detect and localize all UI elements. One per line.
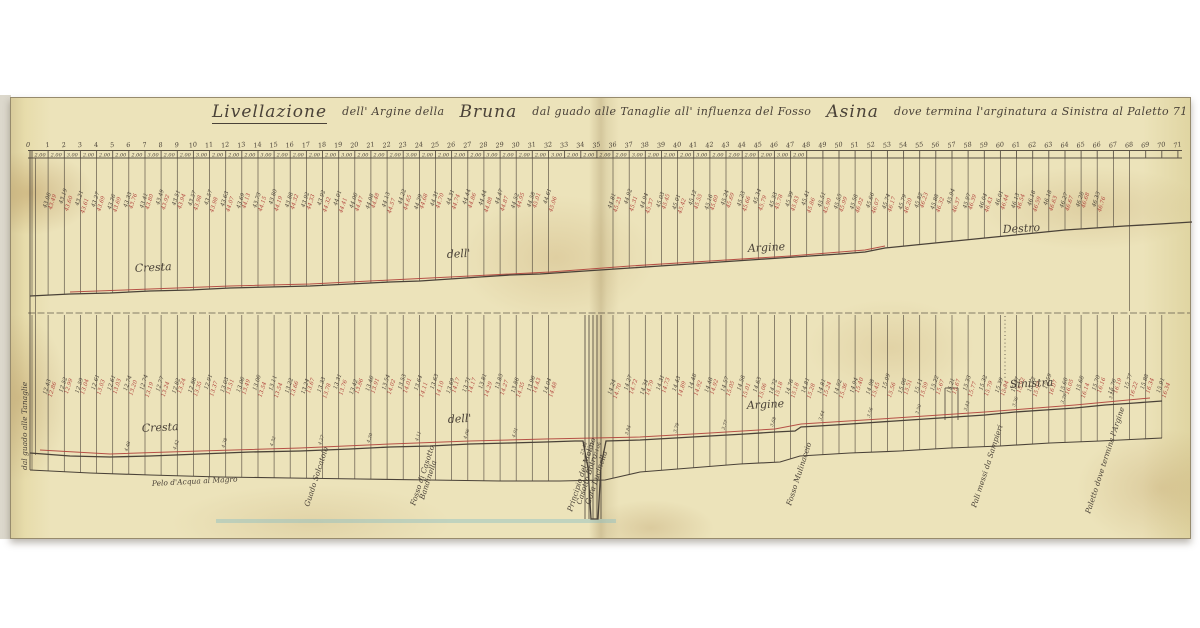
svg-text:59: 59 (979, 140, 989, 150)
svg-text:35: 35 (592, 140, 602, 150)
svg-text:2.00: 2.00 (518, 152, 531, 158)
svg-text:15: 15 (269, 140, 279, 150)
svg-text:8: 8 (158, 141, 164, 150)
svg-text:4.42: 4.42 (172, 439, 181, 451)
svg-text:3.00: 3.00 (551, 152, 563, 158)
svg-text:62: 62 (1027, 140, 1037, 150)
svg-text:3.00: 3.00 (67, 152, 79, 158)
svg-text:55: 55 (914, 140, 924, 150)
svg-text:34: 34 (576, 140, 586, 150)
svg-text:2.00: 2.00 (243, 152, 256, 158)
svg-text:3.50: 3.50 (914, 404, 923, 416)
svg-text:2.00: 2.00 (437, 152, 450, 158)
svg-text:18: 18 (317, 140, 327, 150)
svg-text:14: 14 (253, 140, 263, 150)
svg-text:58: 58 (963, 140, 973, 150)
svg-text:2.00: 2.00 (421, 152, 434, 158)
svg-text:3.00: 3.00 (148, 152, 160, 158)
svg-text:50: 50 (834, 140, 844, 150)
svg-text:2.00: 2.00 (34, 152, 47, 158)
svg-text:2.00: 2.00 (566, 152, 579, 158)
svg-text:2.00: 2.00 (598, 152, 611, 158)
svg-text:51: 51 (850, 140, 860, 150)
svg-text:Fosso Mulinaccio: Fosso Mulinaccio (784, 441, 813, 508)
svg-text:3.00: 3.00 (696, 152, 708, 158)
svg-text:29: 29 (494, 140, 505, 150)
svg-text:Cresta: Cresta (134, 260, 171, 275)
svg-text:31: 31 (527, 140, 537, 150)
svg-text:4.48: 4.48 (123, 441, 132, 453)
svg-text:4.27: 4.27 (317, 434, 326, 446)
svg-text:21: 21 (365, 140, 376, 150)
svg-text:4.11: 4.11 (414, 431, 423, 443)
svg-text:2.00: 2.00 (792, 152, 805, 158)
svg-text:47: 47 (784, 140, 796, 150)
svg-text:2.00: 2.00 (227, 152, 240, 158)
svg-text:54: 54 (898, 140, 908, 150)
svg-text:2.00: 2.00 (82, 152, 95, 158)
svg-text:3.00: 3.00 (196, 152, 208, 158)
svg-text:2.00: 2.00 (98, 152, 111, 158)
svg-text:71: 71 (1173, 140, 1183, 150)
scanned-survey-page: Livellazione dell' Argine della Bruna da… (0, 0, 1200, 628)
svg-text:64: 64 (1060, 140, 1070, 150)
svg-text:26: 26 (445, 140, 456, 150)
svg-text:Cresta: Cresta (141, 420, 178, 435)
svg-text:39: 39 (656, 140, 666, 150)
svg-text:30: 30 (511, 140, 521, 150)
svg-text:65: 65 (1076, 140, 1086, 150)
svg-text:69: 69 (1140, 140, 1150, 150)
svg-text:Paletto dove termina l'Argine: Paletto dove termina l'Argine (1083, 405, 1126, 515)
svg-text:45: 45 (752, 140, 763, 150)
svg-text:2.00: 2.00 (211, 152, 224, 158)
svg-text:3.00: 3.00 (486, 152, 498, 158)
svg-text:3.84: 3.84 (624, 424, 633, 436)
svg-text:2.00: 2.00 (663, 152, 676, 158)
svg-text:2.00: 2.00 (50, 152, 63, 158)
svg-text:24: 24 (413, 140, 424, 150)
svg-text:3.64: 3.64 (818, 410, 827, 422)
svg-text:2.00: 2.00 (372, 152, 385, 158)
svg-text:0: 0 (26, 141, 30, 149)
svg-text:2.00: 2.00 (276, 152, 289, 158)
svg-text:48: 48 (800, 140, 811, 150)
svg-text:33: 33 (559, 140, 569, 150)
svg-text:4: 4 (92, 141, 99, 150)
svg-text:37: 37 (624, 140, 635, 150)
svg-text:12: 12 (220, 140, 230, 150)
svg-text:63: 63 (1044, 140, 1054, 150)
svg-text:Argine: Argine (746, 240, 785, 255)
svg-text:2.00: 2.00 (760, 152, 773, 158)
svg-text:3.00: 3.00 (632, 152, 644, 158)
profile-labels: Crestadell'ArgineDestroCrestadell'Argine… (134, 221, 1053, 435)
svg-text:2.00: 2.00 (130, 152, 143, 158)
svg-text:4.32: 4.32 (268, 436, 277, 448)
svg-text:2.00: 2.00 (582, 152, 595, 158)
svg-text:dal guado alle Tanaglie: dal guado alle Tanaglie (20, 381, 29, 470)
svg-text:2.00: 2.00 (179, 152, 192, 158)
svg-text:Destro: Destro (1001, 221, 1040, 236)
svg-text:4.20: 4.20 (365, 432, 374, 444)
svg-text:44: 44 (736, 140, 747, 150)
svg-text:Pelo d'Acqua al Magro: Pelo d'Acqua al Magro (151, 474, 239, 488)
svg-text:10: 10 (188, 140, 198, 150)
svg-text:2.00: 2.00 (163, 152, 176, 158)
leveling-profile-chart: 0123456789101112131415161718192021222324… (0, 0, 1200, 628)
svg-text:3.43: 3.43 (963, 400, 972, 412)
svg-text:20: 20 (349, 140, 360, 150)
svg-text:70: 70 (1157, 140, 1167, 150)
svg-text:61: 61 (1011, 140, 1021, 150)
svg-text:2.00: 2.00 (502, 152, 515, 158)
svg-text:2.00: 2.00 (453, 152, 466, 158)
svg-text:13: 13 (237, 140, 247, 150)
svg-text:52: 52 (866, 140, 876, 150)
svg-text:23: 23 (397, 140, 408, 150)
svg-text:2.00: 2.00 (711, 152, 724, 158)
svg-text:dell': dell' (446, 247, 470, 261)
svg-text:6: 6 (126, 141, 132, 150)
svg-text:38: 38 (640, 140, 650, 150)
svg-text:3.77: 3.77 (721, 419, 730, 431)
svg-text:2.00: 2.00 (647, 152, 660, 158)
svg-text:17: 17 (301, 140, 312, 150)
svg-text:2.00: 2.00 (534, 152, 547, 158)
svg-text:60: 60 (995, 140, 1005, 150)
svg-text:41: 41 (687, 140, 698, 150)
svg-text:56: 56 (931, 140, 941, 150)
svg-text:Sinistra: Sinistra (1009, 376, 1053, 391)
svg-text:4.06: 4.06 (462, 428, 471, 440)
svg-text:46: 46 (768, 140, 779, 150)
svg-text:4.01: 4.01 (511, 427, 520, 439)
svg-text:2.00: 2.00 (114, 152, 127, 158)
svg-text:3.68: 3.68 (769, 416, 778, 428)
upper-readings: 43.0843.4943.1943.6043.2143.6143.2743.69… (42, 187, 1108, 215)
station-numbers: 0123456789101112131415161718192021222324… (26, 140, 1182, 150)
svg-text:1: 1 (45, 141, 51, 150)
svg-text:2.00: 2.00 (469, 152, 482, 158)
svg-text:3.00: 3.00 (777, 152, 789, 158)
svg-text:3.00: 3.00 (406, 152, 418, 158)
svg-text:2: 2 (60, 141, 67, 150)
svg-text:3.29: 3.29 (1060, 393, 1069, 405)
svg-text:32: 32 (543, 140, 553, 150)
svg-text:3: 3 (77, 141, 83, 150)
svg-text:11: 11 (204, 140, 214, 150)
lower-readings: 12.4312.8612.5212.9912.5913.0412.6113.03… (42, 373, 1172, 400)
marginal-notes: dal guado alle TanagliePelo d'Acqua al M… (20, 381, 1127, 515)
svg-text:2.00: 2.00 (356, 152, 369, 158)
svg-text:22: 22 (381, 140, 392, 150)
svg-text:Argine: Argine (745, 397, 784, 412)
svg-text:2.00: 2.00 (615, 152, 628, 158)
svg-text:57: 57 (947, 140, 958, 150)
svg-text:3.79: 3.79 (672, 422, 681, 434)
svg-text:dell': dell' (447, 412, 471, 426)
svg-text:9: 9 (174, 141, 180, 150)
svg-text:2.00: 2.00 (679, 152, 692, 158)
svg-text:67: 67 (1108, 140, 1119, 150)
svg-text:4.38: 4.38 (220, 437, 229, 449)
svg-text:3.00: 3.00 (260, 152, 272, 158)
svg-text:66: 66 (1092, 140, 1102, 150)
svg-text:2.00: 2.00 (744, 152, 757, 158)
svg-text:27: 27 (462, 140, 474, 150)
svg-text:28: 28 (478, 140, 489, 150)
svg-text:3.00: 3.00 (341, 152, 353, 158)
svg-text:25: 25 (429, 140, 440, 150)
svg-text:43: 43 (720, 140, 731, 150)
svg-text:Pali messi da Sampieri: Pali messi da Sampieri (969, 423, 1005, 509)
svg-text:3.56: 3.56 (866, 407, 875, 419)
svg-text:7: 7 (142, 141, 149, 150)
svg-text:2.00: 2.00 (308, 152, 321, 158)
svg-text:42: 42 (704, 140, 715, 150)
svg-text:2.00: 2.00 (728, 152, 741, 158)
svg-text:5: 5 (109, 141, 115, 150)
svg-text:68: 68 (1124, 140, 1134, 150)
svg-text:53: 53 (882, 140, 892, 150)
svg-text:3.36: 3.36 (1011, 396, 1020, 408)
svg-text:49: 49 (817, 140, 828, 150)
svg-text:2.00: 2.00 (389, 152, 402, 158)
svg-text:16: 16 (285, 140, 295, 150)
svg-text:2.00: 2.00 (292, 152, 305, 158)
svg-text:40: 40 (671, 140, 682, 150)
svg-text:19: 19 (333, 140, 343, 150)
svg-text:36: 36 (608, 140, 618, 150)
svg-text:2.00: 2.00 (324, 152, 337, 158)
